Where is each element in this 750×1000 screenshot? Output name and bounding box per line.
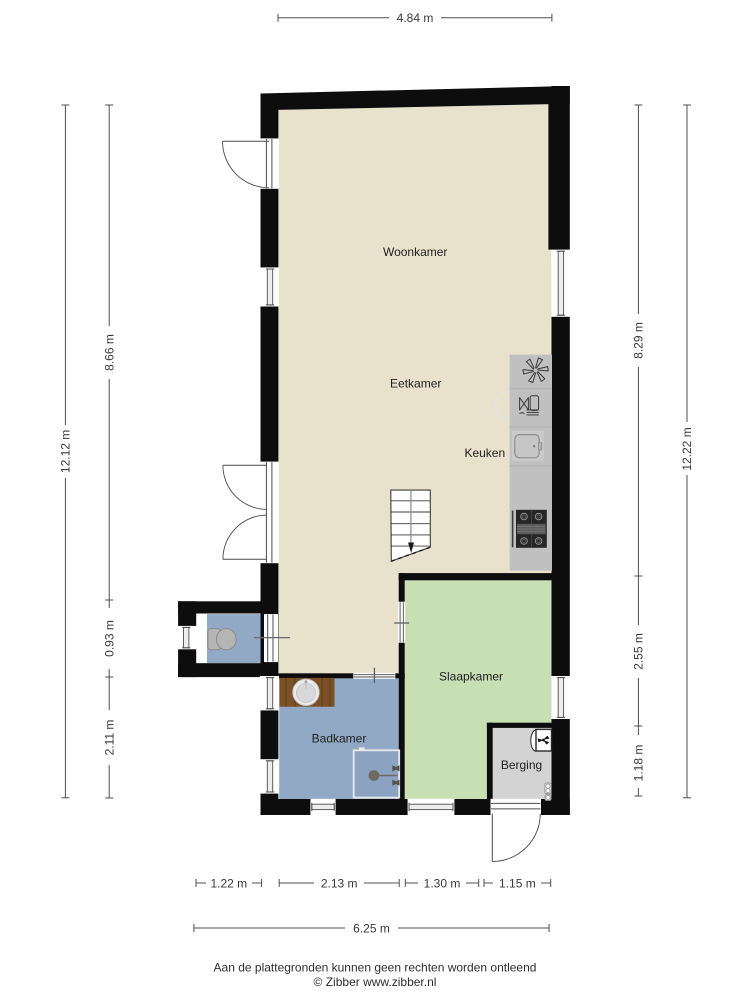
svg-text:Keuken: Keuken bbox=[464, 446, 505, 460]
svg-text:1.18 m: 1.18 m bbox=[632, 745, 646, 782]
svg-text:12.22 m: 12.22 m bbox=[680, 427, 694, 470]
svg-text:Woonkamer: Woonkamer bbox=[383, 245, 447, 259]
svg-text:2.13 m: 2.13 m bbox=[321, 876, 358, 890]
svg-text:Slaapkamer: Slaapkamer bbox=[439, 669, 503, 683]
svg-text:6.25 m: 6.25 m bbox=[353, 921, 390, 935]
svg-text:1.30 m: 1.30 m bbox=[424, 876, 461, 890]
svg-text:Aan de plattegronden kunnen ge: Aan de plattegronden kunnen geen rechten… bbox=[214, 961, 537, 975]
svg-text:1.15 m: 1.15 m bbox=[499, 876, 536, 890]
svg-text:Eetkamer: Eetkamer bbox=[390, 376, 441, 390]
svg-text:12.12 m: 12.12 m bbox=[59, 430, 73, 473]
svg-text:Badkamer: Badkamer bbox=[312, 731, 367, 745]
svg-text:8.29 m: 8.29 m bbox=[632, 322, 646, 359]
svg-text:2.11 m: 2.11 m bbox=[102, 720, 116, 756]
svg-text:4.84 m: 4.84 m bbox=[397, 11, 434, 25]
svg-text:0.93 m: 0.93 m bbox=[102, 620, 116, 657]
svg-text:2.55 m: 2.55 m bbox=[632, 633, 646, 670]
svg-text:© Zibber www.zibber.nl: © Zibber www.zibber.nl bbox=[314, 975, 437, 989]
svg-text:8.66 m: 8.66 m bbox=[102, 334, 116, 371]
svg-text:1.22 m: 1.22 m bbox=[210, 876, 247, 890]
svg-text:Berging: Berging bbox=[501, 758, 542, 772]
